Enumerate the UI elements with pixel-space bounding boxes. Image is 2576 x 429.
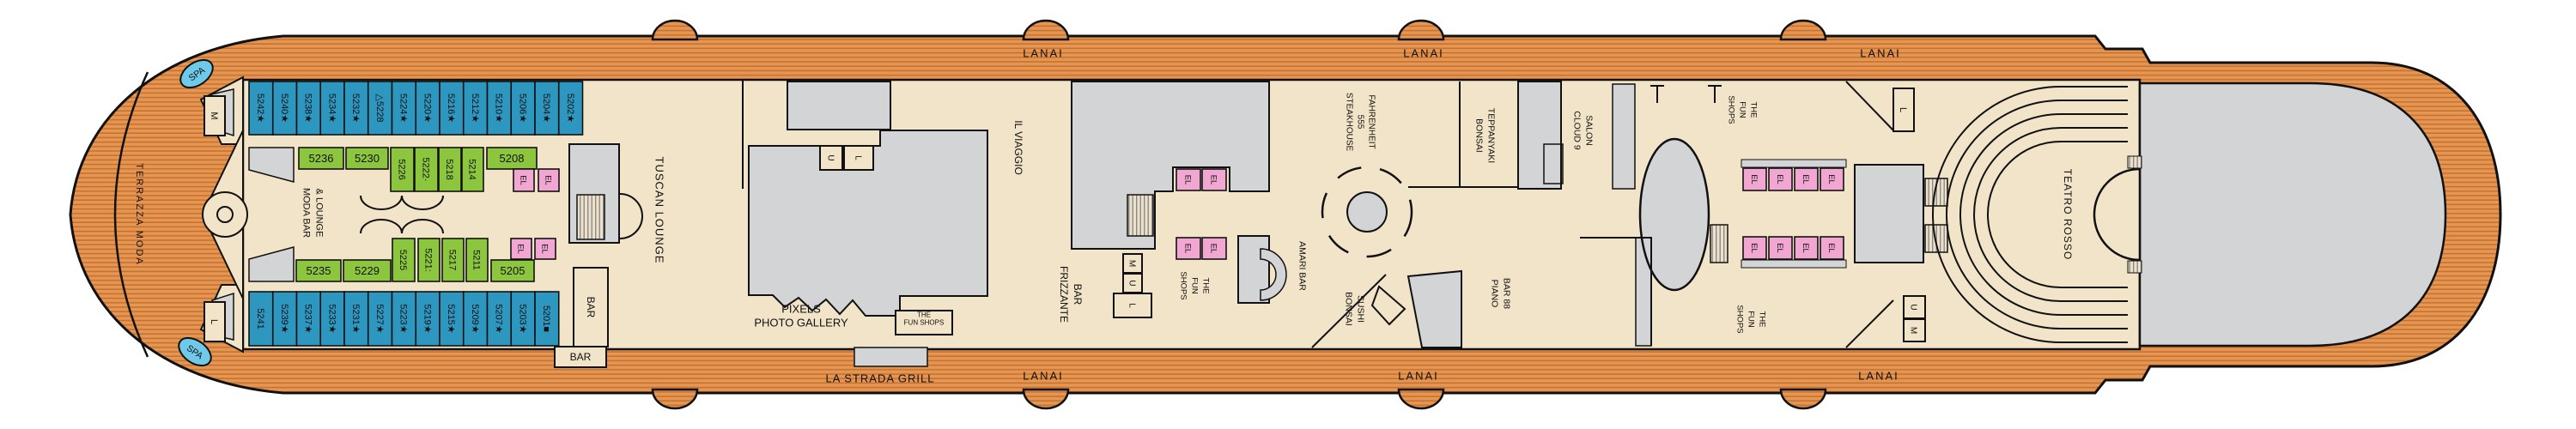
cabin-5221[interactable]: 5221: [418,239,440,281]
elevator-el-box: EL [1202,169,1226,190]
lanai-label: LANAI [1860,47,1901,60]
theater-booth [1855,165,1923,263]
cabin-5204[interactable]: 5204★ [535,82,559,135]
lanai-label: LANAI [1023,47,1064,60]
elevator-el-box: EL [1769,237,1792,259]
el-label: EL [1826,243,1836,253]
el-label: EL [1775,174,1784,184]
cabin-5205[interactable]: 5205 [491,260,534,281]
elevator-box-frizzante-m: M [1123,254,1142,273]
cabin-5209[interactable]: 5209★ [464,292,488,346]
cabin-5237[interactable]: 5237★ [297,292,321,346]
cabin-5203[interactable]: 5203★ [511,292,535,346]
cabin-number: 5204★ [541,94,551,123]
lobby-strip-bottom [1741,260,1846,268]
bar-box-vertical: BAR [574,268,608,347]
bar-box-horizontal: BAR [555,347,606,367]
elevator-el-box: EL [1795,237,1818,259]
piano-bar-88-label: BAR 88 [1501,278,1511,309]
cabin-5229[interactable]: 5229 [343,260,391,281]
cabin-number: 5211 [471,250,482,270]
cabin-number: 5235 [307,264,331,277]
moda-bar-lounge-label: MODA BAR [301,188,312,238]
cabin-number: 5233★ [326,304,337,333]
cabin-number: 5218 [444,159,454,179]
la-strada-counter [854,347,927,366]
fahrenheit-555-steakhouse-label: STEAKHOUSE [1345,93,1354,152]
el-label: EL [1801,243,1810,253]
elevator-el-box: EL [1795,168,1818,190]
gallery-top-block [787,82,890,130]
el-label: EL [1826,174,1836,184]
the-fun-shops-aft-top-label: SHOPS [1727,95,1736,124]
elevator-letter: M [1909,327,1918,334]
cabin-number: 5229 [355,264,380,277]
elevator-letter: M [1127,260,1137,267]
elevator-box-frizzante-l: L [1114,293,1151,317]
el-label: EL [1749,243,1759,253]
cabin-number: 5209★ [470,304,480,333]
elevator-el-box: EL [538,169,559,191]
cabin-number: 5230 [355,152,380,165]
elevator-letter: L [209,319,219,324]
cabin-number: 5205 [501,264,526,277]
cabin-number: 5203★ [517,304,527,333]
lanai-label: LANAI [1398,370,1439,383]
piano-bar-88-label: PIANO [1489,280,1499,308]
elevator-box-theater-l: L [1893,88,1914,131]
elevator-el-box: EL [511,239,532,259]
elevator-letter: L [1898,107,1908,112]
cabin-number: 5216★ [446,94,456,123]
bonsai-sushi-label: BONSAI [1343,292,1353,326]
cabin-number: △5228 [374,94,385,123]
cabin-number: 5215★ [446,304,456,333]
lobby-strip-top [1741,160,1846,167]
el-label: EL [1209,244,1218,254]
cabin-5202[interactable]: 5202★ [559,82,583,135]
lobby-stairs [1710,225,1728,263]
el-label: EL [1775,243,1784,253]
lanai-label: LANAI [1023,370,1064,383]
cabin-5212[interactable]: 5212★ [464,82,488,135]
cabin-5226[interactable]: 5226 [391,148,414,191]
salon-wall-block [1613,84,1635,189]
the-fun-shops-midship-label: THE [1201,278,1211,294]
elevator-box-bow-l: L [204,302,225,341]
cabin-5207[interactable]: 5207★ [488,292,512,346]
cabin-number: 5207★ [494,304,504,333]
terrazza-moda-label: TERRAZZA MODA [134,163,144,266]
elevator-box-bow-m: M [204,96,225,136]
la-strada-grill-label: LA STRADA GRILL [826,372,935,385]
cabin-number: 5239★ [279,304,289,333]
cabin-number: 5242★ [255,94,265,123]
cabin-number: 5208 [500,152,525,165]
bonsai-sushi-label: SUSHI [1355,295,1365,323]
fahrenheit-555-steakhouse-label: 555 [1356,115,1365,130]
elevator-el-box: EL [1743,168,1766,190]
cabin-5239[interactable]: 5239★ [273,292,297,346]
cabin-number: 5217 [447,250,458,270]
cabin-number: 5231★ [350,304,361,333]
el-label: EL [1183,244,1193,254]
cabin-5233[interactable]: 5233★ [320,292,344,346]
lanai-label: LANAI [1858,370,1899,383]
cabin-5228[interactable]: △5228 [368,82,392,135]
the-fun-shops-midship-label: FUN [1190,277,1200,294]
cabin-5236[interactable]: 5236 [299,148,343,169]
cabin-5210[interactable]: 5210★ [488,82,512,135]
the-fun-shops-aft-top-label: THE [1749,102,1759,118]
elevator-letter: U [1909,304,1918,310]
booth-stairs-bottom [1925,225,1947,252]
frizzante-stairs [1127,195,1153,236]
the-fun-shops-aft-bottom-label: THE [1758,311,1767,328]
cabin-number: 5224★ [398,94,409,123]
el-label: EL [1209,175,1218,185]
cabin-number: 5232★ [350,94,361,123]
cabin-number: 5210★ [494,94,504,123]
elevator-letter: M [209,112,219,119]
elevator-el-box: EL [1176,169,1200,190]
cabin-5227[interactable]: 5227★ [368,292,392,346]
frizzante-bar-label: FRIZZANTE [1058,266,1070,323]
cabin-number: 5214 [467,159,477,179]
elevator-box-gallery-l: L [844,146,873,170]
the-fun-shops-aft-bottom-label: SHOPS [1735,305,1745,333]
cabin-number: 5240★ [279,94,289,123]
elevator-box-theater-u: U [1904,296,1925,318]
cabin-number: 5226 [397,159,407,179]
cabin-5240[interactable]: 5240★ [273,82,297,135]
pixels-photo-gallery-label: PIXELS [781,303,821,316]
cabin-5211[interactable]: 5211 [466,239,488,281]
cabin-number: 5238★ [303,94,313,123]
elevator-el-box: EL [1820,237,1844,259]
cabin-5208[interactable]: 5208 [487,148,537,169]
elevator-box-gallery-u: U [820,146,842,170]
cloud-9-salon-label: CLOUD 9 [1571,111,1582,150]
teatro-rosso-label: TEATRO ROSSO [2062,169,2074,260]
cabin-number: 5241 [255,308,265,329]
elevator-box-frizzante-u: U [1123,274,1142,293]
cabin-number: 5221: [423,248,434,272]
lanai-label: LANAI [1403,47,1444,60]
the-fun-shops-aft-top-label: FUN [1738,101,1747,118]
bar-label: BAR [585,297,597,318]
cabin-number: 5223★ [398,304,409,333]
cabin-number: 5234★ [326,94,337,123]
cabin-5214[interactable]: 5214 [462,148,483,191]
cabin-5224[interactable]: 5224★ [392,82,416,135]
deck-plan: 5242★5240★5238★5234★5232★△52285224★5220★… [0,0,2576,429]
the-fun-shops-midship-label: SHOPS [1179,271,1188,299]
cabin-number: 5237★ [303,304,313,333]
cabin-number: 5225 [398,250,408,270]
bonsai-teppanyaki-label: TEPPANYAKI [1485,108,1496,163]
elevator-el-box: EL [513,169,534,191]
cabin-5222[interactable]: 5222· [415,148,438,191]
elevator-letter: L [854,155,863,160]
el-label: EL [1749,174,1759,184]
salon-room-block [1544,144,1563,184]
cabin-number: 5201■ [541,305,551,332]
cabin-5241[interactable]: 5241 [249,292,273,346]
cabin-5223[interactable]: 5223★ [392,292,416,346]
cabin-number: 5219★ [422,304,432,333]
il-viaggio-label: IL VIAGGIO [1012,120,1024,175]
cabin-5225[interactable]: 5225 [392,239,415,281]
cabin-5201[interactable]: 5201■ [535,292,559,346]
elevator-letter: U [1127,280,1137,286]
cabin-5235[interactable]: 5235 [296,260,341,281]
elevator-el-box: EL [1743,237,1766,259]
cabin-5230[interactable]: 5230 [346,148,388,169]
cabin-5218[interactable]: 5218 [439,148,461,191]
elevator-box-theater-m: M [1904,319,1925,341]
the-fun-shops-gallery-label: FUN SHOPS [904,318,945,326]
cabin-5220[interactable]: 5220★ [416,82,440,135]
cloud-9-salon-label: SALON [1583,115,1594,146]
el-label: EL [544,175,553,185]
elevator-letter: L [1127,303,1137,308]
tuscan-lounge-label: TUSCAN LOUNGE [653,157,665,264]
el-label: EL [516,244,526,254]
cabin-number: 5212★ [470,94,480,123]
cabin-5219[interactable]: 5219★ [416,292,440,346]
el-label: EL [519,175,528,185]
cabin-5242[interactable]: 5242★ [249,82,273,135]
moda-bar-lounge-label: & LOUNGE [314,189,325,238]
pixels-photo-gallery-label: PHOTO GALLERY [754,317,848,329]
cabin-number: 5227★ [374,304,385,333]
el-label: EL [1801,174,1810,184]
cabin-5238[interactable]: 5238★ [297,82,321,135]
fahrenheit-555-steakhouse-label: FAHRENHEIT [1367,94,1376,148]
the-fun-shops-gallery-label: THE [917,311,931,318]
atrium-circle [1347,192,1387,232]
elevator-el-box: EL [1769,168,1792,190]
amari-bar-label: AMARI BAR [1297,241,1307,291]
cabin-5216[interactable]: 5216★ [440,82,464,135]
stage-stairs-bottom [2128,261,2142,273]
elevator-el-box: EL [1820,168,1844,190]
frizzante-bar-label: BAR [1072,284,1084,305]
midship-stairs [577,195,605,239]
cabin-number: 5236 [309,152,334,165]
bar-label: BAR [570,351,592,363]
the-fun-shops-aft-bottom-label: FUN [1747,311,1756,328]
cabin-5231[interactable]: 5231★ [344,292,368,346]
cabin-number: 5220★ [422,94,432,123]
elevator-el-box: EL [1176,238,1200,259]
elevator-el-box: EL [535,239,556,259]
el-label: EL [540,244,550,254]
cabin-5206[interactable]: 5206★ [511,82,535,135]
el-label: EL [1183,175,1193,185]
cabin-number: 5222· [421,157,431,181]
cabin-5217[interactable]: 5217 [442,239,464,281]
elevator-el-box: EL [1202,238,1226,259]
cabin-5234[interactable]: 5234★ [320,82,344,135]
elevator-letter: U [826,154,835,160]
cabin-number: 5206★ [517,94,527,123]
cabin-number: 5202★ [565,94,575,123]
cabin-5215[interactable]: 5215★ [440,292,464,346]
stern-service-area [2140,83,2445,346]
bonsai-teppanyaki-label: BONSAI [1473,118,1484,153]
cabin-5232[interactable]: 5232★ [344,82,368,135]
stage-stairs-top [2128,156,2142,168]
